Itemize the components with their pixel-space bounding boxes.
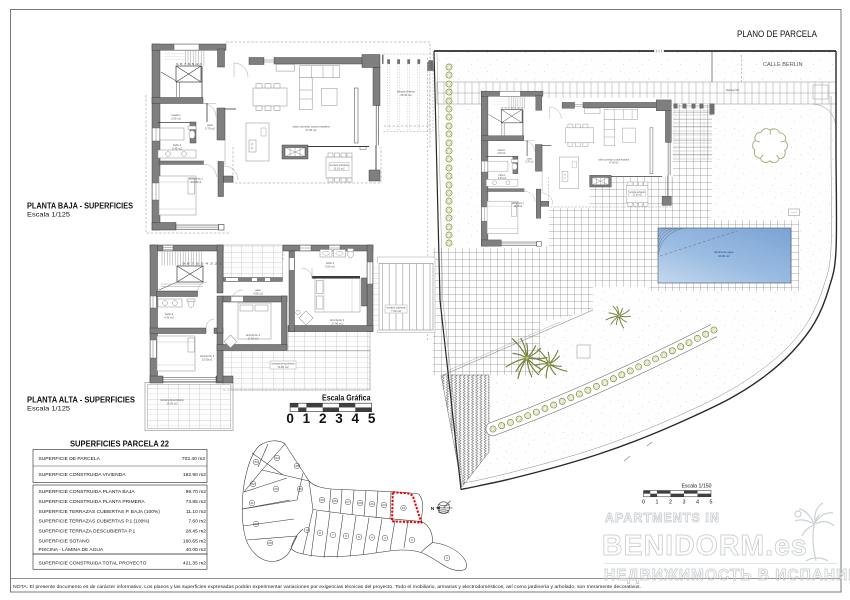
svg-text:SUPERFICIE CONSTRUIDA PLANTA P: SUPERFICIE CONSTRUIDA PLANTA PRIMERA (39, 499, 146, 505)
svg-text:5.45 m2: 5.45 m2 (172, 147, 182, 151)
svg-text:dormitorio 2: dormitorio 2 (330, 318, 345, 322)
svg-text:30: 30 (254, 522, 258, 526)
svg-text:40.00 m2: 40.00 m2 (718, 254, 730, 258)
svg-text:NOTA: El presente documento es: NOTA: El presente documento es de caráct… (13, 584, 641, 590)
svg-text:25: 25 (320, 498, 324, 502)
svg-text:28: 28 (268, 541, 272, 545)
svg-text:baño 1: baño 1 (173, 143, 182, 147)
svg-text:dormitorio 1: dormitorio 1 (246, 333, 261, 337)
svg-text:3: 3 (335, 411, 343, 426)
svg-text:36: 36 (298, 487, 302, 491)
svg-text:5.60 m2: 5.60 m2 (325, 265, 335, 269)
svg-text:0: 0 (642, 500, 645, 506)
svg-text:20: 20 (358, 501, 362, 505)
svg-text:0: 0 (286, 411, 294, 426)
svg-text:3: 3 (683, 500, 686, 506)
svg-text:4.30 m2: 4.30 m2 (164, 316, 174, 320)
svg-text:terraza cubierta: terraza cubierta (387, 306, 406, 310)
svg-text:Escala 1/150: Escala 1/150 (682, 484, 712, 490)
svg-text:APARTMENTS IN: APARTMENTS IN (605, 511, 720, 525)
svg-text:2.60 m2: 2.60 m2 (171, 117, 181, 121)
svg-text:23: 23 (382, 503, 386, 507)
svg-text:421.35 m2: 421.35 m2 (183, 561, 206, 567)
svg-text:SUPERFICIE CONSTRUIDA TOTAL PR: SUPERFICIE CONSTRUIDA TOTAL PROYECTO (39, 561, 147, 567)
svg-text:3: 3 (384, 536, 386, 540)
svg-text:74.80 m2: 74.80 m2 (277, 365, 289, 369)
svg-text:5.70 m2: 5.70 m2 (205, 127, 215, 131)
svg-text:40.00 m2: 40.00 m2 (186, 547, 207, 553)
svg-text:11.10 m2: 11.10 m2 (333, 167, 345, 171)
svg-text:PISCINA - LÁMINA DE AGUA: PISCINA - LÁMINA DE AGUA (39, 546, 104, 553)
svg-text:9: 9 (306, 528, 308, 532)
svg-text:7.60 m2: 7.60 m2 (188, 519, 206, 525)
svg-text:terraza cubierta: terraza cubierta (330, 163, 349, 167)
svg-text:dormitorio 1: dormitorio 1 (189, 177, 204, 181)
svg-text:N: N (431, 506, 435, 512)
svg-text:702.40 m2: 702.40 m2 (182, 456, 205, 462)
svg-text:11.10 m2: 11.10 m2 (186, 509, 206, 515)
svg-text:SUPERFICIE DE PARCELA: SUPERFICIE DE PARCELA (39, 456, 101, 462)
svg-text:Rampa 5%: Rampa 5% (726, 88, 740, 92)
svg-text:182.90 m2: 182.90 m2 (183, 472, 206, 478)
svg-text:baño 3: baño 3 (165, 312, 174, 316)
svg-text:5: 5 (710, 500, 713, 506)
svg-text:5: 5 (358, 535, 360, 539)
svg-text:27: 27 (346, 500, 350, 504)
svg-text:99.70 m2: 99.70 m2 (186, 489, 207, 495)
svg-text:Escala 1/125: Escala 1/125 (27, 406, 71, 413)
svg-text:73.85 m2: 73.85 m2 (186, 499, 207, 505)
svg-text:PLANTA BAJA - SUPERFICIES: PLANTA BAJA - SUPERFICIES (27, 202, 134, 211)
svg-text:trastero: trastero (171, 113, 181, 117)
svg-text:17.90 m2: 17.90 m2 (331, 322, 343, 326)
svg-text:salón comedor cocina escalera: salón comedor cocina escalera (292, 125, 330, 129)
svg-text:9 8 7 6 5 4 3 2 1: 9 8 7 6 5 4 3 2 1 (182, 263, 224, 266)
svg-text:baño 2: baño 2 (326, 261, 335, 265)
svg-text:PLANTA ALTA - SUPERFICIES: PLANTA ALTA - SUPERFICIES (27, 396, 136, 405)
svg-text:2: 2 (411, 538, 413, 542)
svg-text:7.60 m2: 7.60 m2 (391, 309, 401, 313)
svg-text:Escala 1/125: Escala 1/125 (27, 212, 71, 219)
svg-text:5: 5 (368, 411, 376, 426)
svg-text:SUPERFICIE TERRAZA DESCUBIERTA: SUPERFICIE TERRAZA DESCUBIERTA P.1 (39, 529, 136, 535)
svg-text:33: 33 (254, 460, 258, 464)
svg-text:dormitorio 3: dormitorio 3 (200, 354, 215, 358)
svg-text:8: 8 (319, 531, 321, 535)
svg-text:1: 1 (303, 411, 311, 426)
svg-text:29: 29 (274, 487, 278, 491)
svg-text:160.65 m2: 160.65 m2 (183, 539, 206, 545)
svg-text:SUPERFICIE TERRAZAS CUBIERTAS: SUPERFICIE TERRAZAS CUBIERTAS P. BAJA (1… (39, 509, 161, 515)
svg-text:terraza descubierta: terraza descubierta (160, 398, 184, 402)
svg-text:35: 35 (295, 464, 299, 468)
svg-text:21: 21 (370, 502, 374, 506)
svg-text:4.95 m2: 4.95 m2 (253, 292, 263, 296)
svg-text:28.45 m2: 28.45 m2 (400, 93, 412, 97)
svg-text:7: 7 (332, 533, 334, 537)
svg-text:32: 32 (251, 482, 255, 486)
svg-text:SUPERFICIE CONSTRUIDA PLANTA B: SUPERFICIE CONSTRUIDA PLANTA BAJA (39, 489, 136, 495)
svg-text:2: 2 (669, 500, 672, 506)
svg-text:16.20 m2: 16.20 m2 (166, 402, 178, 406)
svg-text:SUPERFICIES PARCELA 22: SUPERFICIES PARCELA 22 (70, 440, 169, 449)
svg-text:terraza exterior: terraza exterior (397, 90, 415, 94)
svg-text:SUPERFICIE TERRAZAS CUBIERTAS: SUPERFICIE TERRAZAS CUBIERTAS P.1 (100%) (39, 519, 150, 525)
svg-text:13.05m2: 13.05m2 (191, 180, 202, 184)
svg-text:4: 4 (696, 500, 699, 506)
svg-text:terraza descubierta: terraza descubierta (271, 362, 295, 366)
svg-text:2: 2 (319, 411, 327, 426)
svg-text:6: 6 (345, 534, 347, 538)
svg-text:CALLE BERLIN: CALLE BERLIN (763, 62, 802, 68)
svg-text:28.45 m2: 28.45 m2 (186, 529, 207, 535)
svg-text:11.90 m2: 11.90 m2 (247, 337, 259, 341)
svg-text:НЕДВИЖИМОСТЬ В ИСПАНИИ: НЕДВИЖИМОСТЬ В ИСПАНИИ (604, 567, 850, 584)
svg-text:26: 26 (333, 499, 337, 503)
svg-text:Escala Gráfica: Escala Gráfica (322, 394, 371, 403)
svg-text:SUPERFICIE CONSTRUIDA VIVIENDA: SUPERFICIE CONSTRUIDA VIVIENDA (39, 472, 127, 478)
svg-text:9 8 7 6 5 4 3: 9 8 7 6 5 4 3 (176, 63, 203, 66)
svg-text:BENIDORM.es: BENIDORM.es (602, 530, 808, 562)
svg-text:47.05 m2: 47.05 m2 (305, 128, 317, 132)
svg-text:4: 4 (371, 536, 373, 540)
svg-text:34: 34 (275, 456, 279, 460)
svg-text:1: 1 (446, 556, 448, 560)
svg-text:22: 22 (402, 506, 406, 510)
svg-text:PLANO DE PARCELA: PLANO DE PARCELA (737, 29, 817, 39)
svg-text:4: 4 (352, 411, 360, 426)
svg-text:1: 1 (656, 500, 659, 506)
svg-text:13.05m2: 13.05m2 (202, 358, 213, 362)
svg-text:SUPERFICIE SOTANO: SUPERFICIE SOTANO (39, 539, 90, 545)
svg-text:31: 31 (250, 501, 254, 505)
